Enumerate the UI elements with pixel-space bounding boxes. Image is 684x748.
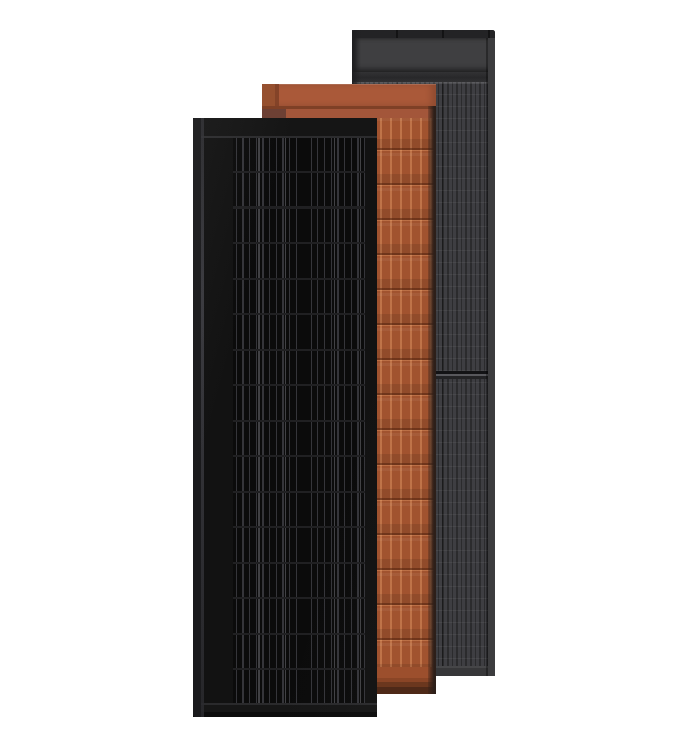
product-stage [0, 0, 684, 748]
panel-right-side-face [428, 106, 436, 694]
solar-cell-field [233, 138, 365, 703]
panel-header-band [352, 38, 495, 72]
panel-sub-band [262, 109, 436, 118]
panel-right-edge [486, 38, 495, 676]
panel-divider [352, 72, 495, 82]
panel-top-edge [352, 30, 495, 38]
panel-left-tab [262, 109, 286, 118]
panel-left-edge [193, 118, 201, 717]
panel-left-edge-highlight [201, 118, 204, 717]
cell-column-right [308, 138, 365, 703]
panel-bottom-edge [193, 703, 377, 717]
panel-header-band [193, 118, 377, 138]
header-groove-line [275, 84, 279, 106]
panel-header-band [262, 84, 436, 106]
solar-panel-black [193, 118, 377, 717]
header-left-shade [262, 84, 275, 106]
cell-column-gap [301, 138, 308, 703]
cell-column-left [233, 138, 301, 703]
